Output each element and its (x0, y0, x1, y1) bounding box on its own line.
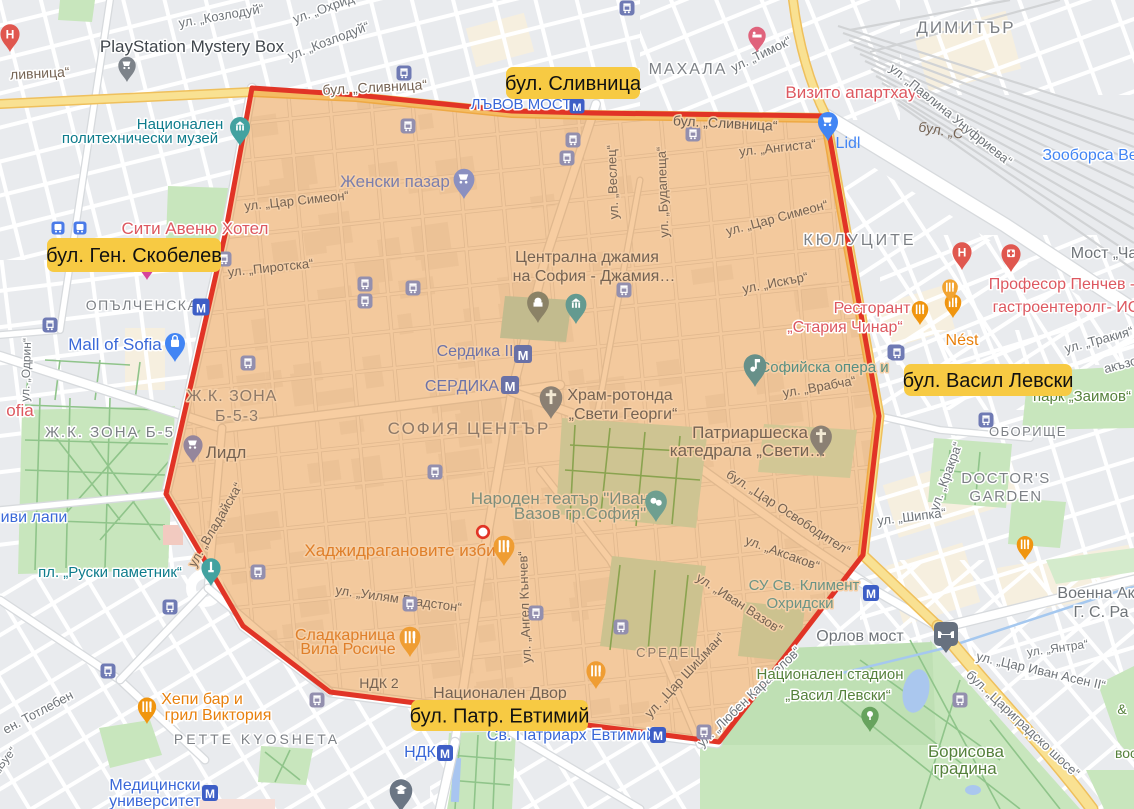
svg-text:H: H (958, 245, 967, 259)
svg-text:GARDEN: GARDEN (969, 488, 1042, 505)
svg-text:СОФИЯ ЦЕНТЪР: СОФИЯ ЦЕНТЪР (388, 419, 551, 438)
svg-text:университет: университет (109, 793, 201, 809)
svg-text:Храм-ротонда: Храм-ротонда (567, 387, 672, 404)
svg-text:Военна Ак: Военна Ак (1057, 585, 1134, 602)
svg-text:Орлов мост: Орлов мост (816, 628, 904, 645)
svg-text:Nést: Nést (946, 332, 979, 349)
svg-text:ОПЪЛЧЕНСКА: ОПЪЛЧЕНСКА (86, 297, 199, 313)
svg-text:Б-5-3: Б-5-3 (215, 408, 259, 425)
svg-text:PlayStation Mystery Box: PlayStation Mystery Box (100, 37, 285, 56)
svg-text:бул. Ген. Скобелев: бул. Ген. Скобелев (46, 245, 222, 267)
svg-text:Lidl: Lidl (836, 135, 861, 152)
svg-text:бул. Васил Левски: бул. Васил Левски (903, 370, 1074, 392)
svg-text:Сердика II: Сердика II (437, 343, 514, 360)
svg-text:ofia: ofia (6, 401, 34, 420)
svg-text:вос: вос (1115, 745, 1134, 761)
svg-text:Мост „Ча: Мост „Ча (1071, 245, 1134, 262)
svg-text:Вазов гр.София": Вазов гр.София" (514, 504, 646, 523)
svg-text:НДК: НДК (404, 744, 436, 761)
svg-text:ул. „Одрин“: ул. „Одрин“ (18, 338, 34, 402)
svg-text:политехнически музей: политехнически музей (62, 130, 218, 147)
svg-text:М: М (866, 587, 876, 601)
svg-text:градина: градина (933, 759, 997, 778)
svg-text:ул. „Будапеща“: ул. „Будапеща“ (653, 146, 671, 237)
svg-text:МАХАЛА: МАХАЛА (649, 61, 728, 78)
svg-text:Ж.К. ЗОНА Б-5: Ж.К. ЗОНА Б-5 (45, 424, 175, 441)
svg-text:ул. „Веслец“: ул. „Веслец“ (604, 145, 622, 220)
svg-text:DOCTOR'S: DOCTOR'S (961, 470, 1051, 487)
svg-text:H: H (6, 27, 15, 41)
svg-text:на София - Джамия…: на София - Джамия… (513, 268, 676, 285)
svg-text:&: & (1117, 701, 1127, 717)
svg-text:ливница“: ливница“ (10, 63, 71, 82)
svg-text:Патриаршеска: Патриаршеска (692, 423, 808, 442)
svg-text:Софийска опера и: Софийска опера и (759, 359, 888, 376)
svg-text:бул. Сливница: бул. Сливница (505, 73, 642, 95)
svg-text:Медицински: Медицински (109, 777, 200, 794)
svg-text:СУ Св. Климент: СУ Св. Климент (749, 577, 860, 594)
svg-text:М: М (518, 348, 529, 363)
svg-text:„Свети Георги“: „Свети Георги“ (569, 406, 678, 423)
svg-text:НДК 2: НДК 2 (359, 675, 399, 691)
svg-text:ДИМИТЪР: ДИМИТЪР (916, 18, 1015, 37)
svg-text:М: М (653, 729, 663, 743)
svg-text:Национален Двор: Национален Двор (433, 685, 567, 702)
svg-text:Професор Пенчев -: Професор Пенчев - (989, 276, 1134, 293)
svg-text:М: М (572, 102, 581, 114)
svg-text:Хепи бар и: Хепи бар и (161, 691, 243, 708)
svg-text:Ж.К. ЗОНА: Ж.К. ЗОНА (187, 388, 278, 405)
svg-text:Централна джамия: Централна джамия (515, 249, 659, 266)
svg-text:„Стария Чинар“: „Стария Чинар“ (787, 319, 902, 336)
svg-text:М: М (440, 747, 450, 761)
svg-text:Охридски: Охридски (767, 595, 834, 612)
svg-text:М: М (196, 301, 206, 315)
svg-text:пл. „Руски паметник“: пл. „Руски паметник“ (38, 564, 182, 581)
svg-text:М: М (205, 787, 215, 801)
svg-text:катедрала „Свети…: катедрала „Свети… (670, 441, 826, 460)
svg-text:М: М (505, 379, 516, 394)
svg-text:Лидл: Лидл (206, 443, 247, 462)
svg-text:Хаджидрагановите изби: Хаджидрагановите изби (304, 541, 495, 560)
svg-text:Вила Росиче: Вила Росиче (300, 641, 395, 658)
svg-text:бул. Патр. Евтимий: бул. Патр. Евтимий (410, 706, 590, 728)
svg-text:Ресторант: Ресторант (834, 300, 912, 317)
svg-text:СРЕДЕЦ: СРЕДЕЦ (636, 645, 702, 660)
svg-text:КЮЛУЦИТЕ: КЮЛУЦИТЕ (803, 232, 916, 249)
svg-text:ОБОРИЩЕ: ОБОРИЩЕ (989, 424, 1067, 439)
svg-text:PETTE KYOSHETA: PETTE KYOSHETA (174, 731, 340, 747)
svg-text:Женски пазар: Женски пазар (340, 172, 450, 191)
svg-text:Зооборса Ве: Зооборса Ве (1042, 147, 1134, 164)
svg-text:Г. С. Ра: Г. С. Ра (1073, 604, 1128, 621)
svg-text:СЕРДИКА: СЕРДИКА (425, 378, 499, 395)
svg-text:Национален стадион: Национален стадион (757, 666, 904, 683)
svg-text:гастроентеролг- ИС: гастроентеролг- ИС (993, 299, 1134, 316)
svg-text:Сити Авеню Хотел: Сити Авеню Хотел (122, 219, 269, 238)
svg-text:Mall of Sofia: Mall of Sofia (68, 335, 162, 354)
svg-text:иви лапи: иви лапи (1, 509, 68, 526)
svg-text:„Васил Левски“: „Васил Левски“ (785, 687, 891, 704)
svg-text:грил Виктория: грил Виктория (165, 707, 272, 724)
